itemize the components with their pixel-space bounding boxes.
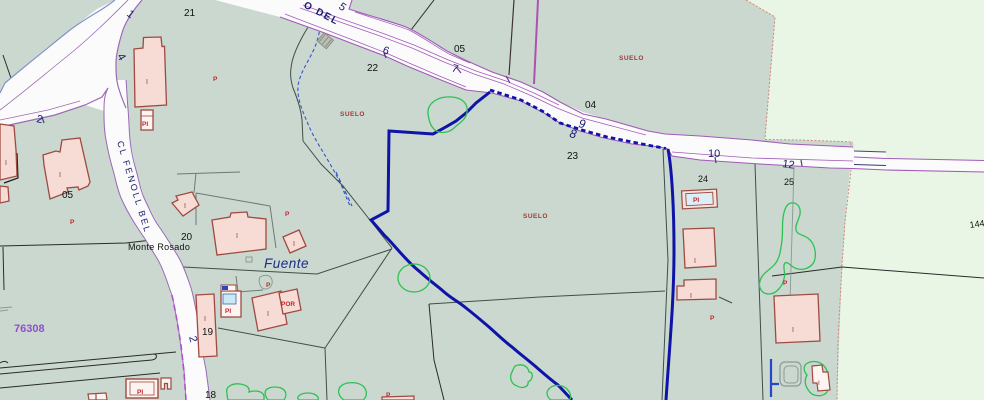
svg-text:P: P xyxy=(285,211,290,218)
svg-text:144: 144 xyxy=(969,218,984,230)
svg-text:I: I xyxy=(267,311,269,318)
svg-text:P: P xyxy=(70,219,75,226)
svg-text:I: I xyxy=(236,233,238,240)
svg-text:23: 23 xyxy=(567,151,579,162)
svg-text:05: 05 xyxy=(454,44,466,55)
svg-text:SUELO: SUELO xyxy=(340,111,365,118)
svg-text:I: I xyxy=(204,316,206,323)
svg-text:I: I xyxy=(293,241,295,248)
svg-text:25: 25 xyxy=(784,177,794,187)
svg-text:I: I xyxy=(5,160,7,167)
svg-text:04: 04 xyxy=(585,100,597,111)
svg-text:05: 05 xyxy=(62,190,74,201)
svg-text:I: I xyxy=(694,258,696,265)
svg-text:21: 21 xyxy=(184,8,196,19)
svg-text:SUELO: SUELO xyxy=(523,213,548,220)
svg-text:P: P xyxy=(266,282,271,289)
svg-text:SUELO: SUELO xyxy=(619,55,644,62)
svg-text:19: 19 xyxy=(202,327,214,338)
svg-text:P: P xyxy=(783,280,788,287)
svg-text:PI: PI xyxy=(142,121,148,128)
svg-text:24: 24 xyxy=(698,174,708,184)
svg-text:P: P xyxy=(710,315,715,322)
svg-text:22: 22 xyxy=(367,63,379,74)
svg-text:I: I xyxy=(792,327,794,334)
svg-text:P: P xyxy=(386,392,391,399)
svg-text:I: I xyxy=(690,293,692,300)
svg-text:I: I xyxy=(818,380,820,387)
svg-text:P: P xyxy=(213,76,218,83)
svg-text:Monte Rosado: Monte Rosado xyxy=(128,242,190,252)
svg-text:10: 10 xyxy=(708,148,720,160)
svg-text:I: I xyxy=(146,79,148,86)
svg-text:I: I xyxy=(184,203,186,210)
svg-text:PI: PI xyxy=(225,308,231,315)
svg-text:I: I xyxy=(59,172,61,179)
svg-text:Fuente: Fuente xyxy=(264,256,309,271)
svg-text:POR: POR xyxy=(281,301,295,308)
svg-text:76308: 76308 xyxy=(14,323,45,335)
svg-text:18: 18 xyxy=(205,390,217,400)
svg-text:PI: PI xyxy=(137,389,143,396)
svg-text:PI: PI xyxy=(693,197,699,204)
svg-text:12: 12 xyxy=(782,158,796,172)
